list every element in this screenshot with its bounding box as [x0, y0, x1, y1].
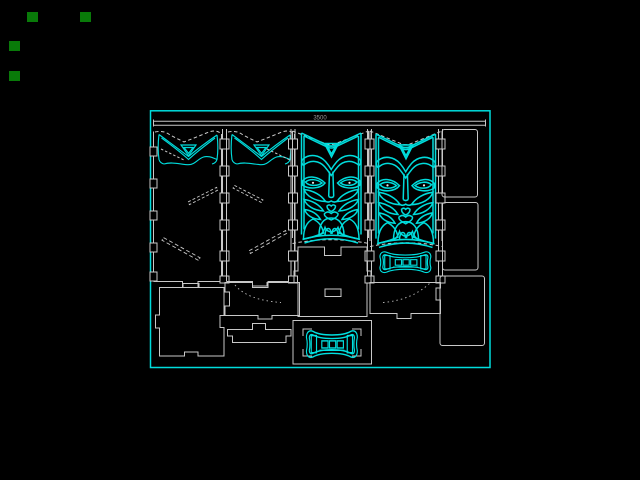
svg-text:3500: 3500 — [313, 116, 327, 122]
